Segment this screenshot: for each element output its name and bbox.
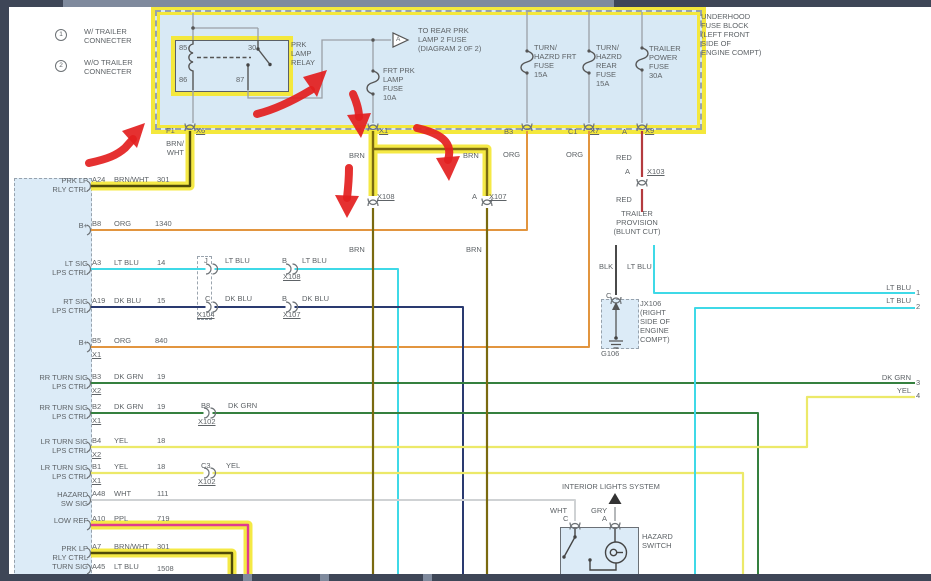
- wire-label-red: RED: [616, 195, 632, 204]
- pin-a-hazard: A: [602, 514, 607, 523]
- legend-2-label: W/O TRAILER CONNECTER: [84, 58, 133, 76]
- wire-label-ltblu: LT BLU: [302, 256, 327, 265]
- ground-arrow-icon: [612, 302, 620, 310]
- pin-c-x104: C: [205, 294, 210, 303]
- jx106-label: JX106 (RIGHT SIDE OF ENGINE COMPT): [640, 299, 670, 344]
- legend-1-badge: 1: [55, 29, 67, 41]
- exit-num-3: 3: [916, 378, 920, 387]
- row-pin: B3: [92, 372, 101, 381]
- row-pin: A7: [92, 542, 101, 551]
- row-color: LT BLU: [114, 258, 139, 267]
- row-pin: A10: [92, 514, 105, 523]
- row-sub-connector[interactable]: X2: [92, 450, 101, 459]
- relay-pin-87: 87: [236, 75, 244, 84]
- turn-hazrd-rear-fuse-label: TURN/ HAZRD REAR FUSE 15A: [596, 43, 622, 88]
- row-pin: A3: [92, 258, 101, 267]
- pin-c-hazard: C: [563, 514, 568, 523]
- module-row-label: RR TURN SIG LPS CTRL: [20, 373, 88, 391]
- pin-b: B: [282, 256, 287, 265]
- vertical-connectors: [185, 124, 647, 530]
- bottom-bar-notch: [320, 574, 329, 581]
- row-sub-connector[interactable]: X1: [92, 476, 101, 485]
- row-color: BRN/WHT: [114, 542, 149, 551]
- row-circuit: 14: [157, 258, 165, 267]
- connector-ref-x107-2[interactable]: X107: [283, 310, 301, 319]
- exit-label-dkgrn-3: DK GRN: [871, 373, 911, 382]
- row-circuit: 840: [155, 336, 168, 345]
- exit-num-4: 4: [916, 391, 920, 400]
- relay-contact-dot: [246, 63, 249, 66]
- hazard-switch-internals: [564, 529, 627, 570]
- wiring-svg: [0, 0, 931, 581]
- ground-dot: [614, 336, 618, 340]
- module-row-label: RT SIG LPS CTRL: [20, 297, 88, 315]
- module-row-label: LT SIG LPS CTRL: [20, 259, 88, 277]
- bottom-bar-notch: [423, 574, 432, 581]
- row-circuit: 719: [157, 514, 170, 523]
- pin-b8-x102: B8: [201, 401, 210, 410]
- row-circuit: 111: [157, 489, 168, 498]
- wire-label-brn: BRN: [463, 151, 479, 160]
- exit-label-ltblu-2: LT BLU: [871, 296, 911, 305]
- row-circuit: 19: [157, 402, 165, 411]
- row-pin: A19: [92, 296, 105, 305]
- exit-num-2: 2: [916, 302, 920, 311]
- row-color: LT BLU: [114, 562, 139, 571]
- connector-ref-x108[interactable]: X108: [377, 192, 395, 201]
- row-circuit: 1340: [155, 219, 172, 228]
- highlight-strokes: [91, 131, 487, 574]
- wire-org-b5: [90, 131, 589, 347]
- connector-ref-x6[interactable]: X6: [196, 126, 205, 135]
- module-row-label: LR TURN SIG LPS CTRL: [20, 437, 88, 455]
- pin-j: J: [204, 256, 208, 265]
- relay-pin-85: 85: [179, 43, 187, 52]
- connector-ref-x1[interactable]: X1: [379, 126, 388, 135]
- row-circuit: 15: [157, 296, 165, 305]
- junction-dot: [371, 38, 375, 42]
- row-circuit: 18: [157, 436, 165, 445]
- row-sub-connector[interactable]: X1: [92, 350, 101, 359]
- ground-g106-icon: [609, 307, 623, 348]
- switch-dot: [573, 535, 576, 538]
- row-circuit: 301: [157, 175, 170, 184]
- pin-a-x9: A: [622, 127, 627, 136]
- connector-ref-x103[interactable]: X103: [647, 167, 665, 176]
- wire-label-brn: BRN: [349, 245, 365, 254]
- bottom-bar-notch: [243, 574, 252, 581]
- pin-f1: F1: [166, 126, 175, 135]
- wire-label-ltblu: LT BLU: [627, 262, 652, 271]
- module-row-label: B+: [20, 338, 88, 347]
- row-circuit: 18: [157, 462, 165, 471]
- pin-c-jx106: C: [606, 291, 611, 300]
- interior-lights-label: INTERIOR LIGHTS SYSTEM: [562, 482, 660, 491]
- row-circuit: 1508: [157, 564, 174, 573]
- connector-ref-x7[interactable]: X7: [590, 126, 599, 135]
- row-circuit: 19: [157, 372, 165, 381]
- row-color: YEL: [114, 436, 128, 445]
- wire-label-brn: BRN: [466, 245, 482, 254]
- row-color: PPL: [114, 514, 128, 523]
- pin-a-x103: A: [625, 167, 630, 176]
- exit-num-1: 1: [916, 288, 920, 297]
- g106-label: G106: [601, 349, 619, 358]
- relay-switch-icon: [258, 40, 270, 65]
- turn-hazrd-frt-fuse-label: TURN/ HAZRD FRT FUSE 15A: [534, 43, 576, 79]
- wire-brn-x1-split: [373, 131, 487, 196]
- row-pin: B2: [92, 402, 101, 411]
- row-circuit: 301: [157, 542, 170, 551]
- module-row-label: PRK LP RLY CTRL: [20, 544, 88, 562]
- relay-contact-dot: [268, 63, 271, 66]
- row-pin: A48: [92, 489, 105, 498]
- pin-c3-x102: C3: [201, 461, 211, 470]
- wire-brn-verticals: [373, 208, 487, 574]
- switch-dot: [588, 558, 591, 561]
- row-color: DK GRN: [114, 402, 143, 411]
- row-pin: A45: [92, 562, 105, 571]
- connector-ref-x104[interactable]: X104: [197, 310, 215, 319]
- trailer-provision-label: TRAILER PROVISION (BLUNT CUT): [597, 209, 677, 236]
- pin-c1: C1: [568, 127, 578, 136]
- row-color: YEL: [114, 462, 128, 471]
- wire-label-dkblu: DK BLU: [225, 294, 252, 303]
- module-row-label: TURN SIG: [20, 562, 88, 571]
- wire-label-org: ORG: [503, 150, 520, 159]
- relay-pin-86: 86: [179, 75, 187, 84]
- triangle-letter: A: [396, 35, 400, 44]
- pin-b-x107: B: [282, 294, 287, 303]
- wire-label-yel: YEL: [226, 461, 240, 470]
- row-color: BRN/WHT: [114, 175, 149, 184]
- module-row-label: RR TURN SIG LPS CTRL: [20, 403, 88, 421]
- row-sub-connector[interactable]: X2: [92, 386, 101, 395]
- pin-b3: B3: [504, 127, 513, 136]
- junction-dot: [191, 26, 195, 30]
- module-row-label: LOW REF: [20, 516, 88, 525]
- connector-ref-x9[interactable]: X9: [645, 126, 654, 135]
- relay-coil-icon: [189, 40, 193, 90]
- row-color: ORG: [114, 336, 131, 345]
- bottom-chrome-bar[interactable]: [9, 574, 931, 581]
- trailer-power-fuse-label: TRAILER POWER FUSE 30A: [649, 44, 681, 80]
- row-pin: B5: [92, 336, 101, 345]
- connector-ref-x102-2[interactable]: X102: [198, 477, 216, 486]
- relay-label: PRK LAMP RELAY: [291, 40, 315, 67]
- module-row-label: PRK LP RLY CTRL: [20, 176, 88, 194]
- wiring-diagram-page: 1 W/ TRAILER CONNECTER 2 W/O TRAILER CON…: [0, 0, 931, 581]
- top-chrome-segment: [63, 0, 614, 7]
- interior-lights-arrow-icon: [609, 493, 622, 504]
- hazard-switch-label: HAZARD SWITCH: [642, 532, 673, 550]
- row-color: DK BLU: [114, 296, 141, 305]
- exit-label-yel-4: YEL: [871, 386, 911, 395]
- wire-label-blk: BLK: [599, 262, 613, 271]
- legend-2-badge: 2: [55, 60, 67, 72]
- module-row-label: B+: [20, 221, 88, 230]
- relay-pin-30: 30: [248, 43, 256, 52]
- left-chrome-bar: [0, 7, 9, 581]
- connector-ref-x107[interactable]: X107: [489, 192, 507, 201]
- row-pin: A24: [92, 175, 105, 184]
- row-sub-connector[interactable]: X1: [92, 416, 101, 425]
- switch-dot: [562, 555, 565, 558]
- relay-contact-dot: [256, 47, 259, 50]
- row-pin: B1: [92, 462, 101, 471]
- wire-label-org: ORG: [566, 150, 583, 159]
- wire-label-dkgrn: DK GRN: [228, 401, 257, 410]
- pin-a-x107: A: [472, 192, 477, 201]
- wire-label-red: RED: [616, 153, 632, 162]
- row-pin: B8: [92, 219, 101, 228]
- row-color: WHT: [114, 489, 131, 498]
- module-row-label: LR TURN SIG LPS CTRL: [20, 463, 88, 481]
- to-rear-prk-label: TO REAR PRK LAMP 2 FUSE (DIAGRAM 2 0F 2): [418, 26, 481, 53]
- module-row-label: HAZARD SW SIG: [20, 490, 88, 508]
- wire-label-brnwht-vert: BRN/ WHT: [160, 139, 184, 157]
- exit-label-ltblu-1: LT BLU: [871, 283, 911, 292]
- connector-ref-x108-2[interactable]: X108: [283, 272, 301, 281]
- row-color: DK GRN: [114, 372, 143, 381]
- connector-ref-x102[interactable]: X102: [198, 417, 216, 426]
- wire-label-brn: BRN: [349, 151, 365, 160]
- frt-prk-fuse-label: FRT PRK LAMP FUSE 10A: [383, 66, 415, 102]
- legend-1-label: W/ TRAILER CONNECTER: [84, 27, 132, 45]
- row-pin: B4: [92, 436, 101, 445]
- wire-label-dkblu: DK BLU: [302, 294, 329, 303]
- fuse-block-title: UNDERHOOD FUSE BLOCK (LEFT FRONT SIDE OF…: [701, 12, 761, 57]
- wire-ltblu-exit2: [695, 308, 915, 574]
- row-color: ORG: [114, 219, 131, 228]
- wire-label-ltblu: LT BLU: [225, 256, 250, 265]
